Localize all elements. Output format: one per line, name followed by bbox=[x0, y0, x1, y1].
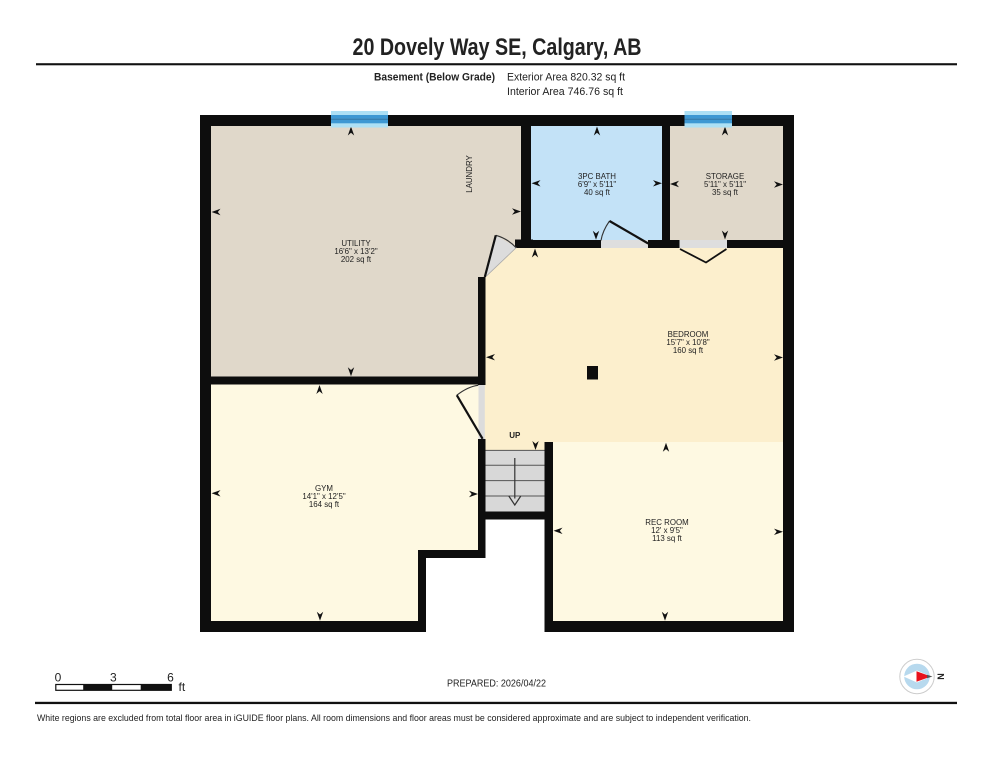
svg-text:113 sq ft: 113 sq ft bbox=[652, 534, 682, 543]
svg-text:N: N bbox=[936, 673, 946, 680]
svg-text:20 Dovely Way SE, Calgary, AB: 20 Dovely Way SE, Calgary, AB bbox=[353, 34, 642, 61]
svg-text:40 sq ft: 40 sq ft bbox=[584, 188, 611, 197]
svg-text:Basement (Below Grade): Basement (Below Grade) bbox=[374, 72, 495, 84]
svg-text:UP: UP bbox=[509, 431, 521, 440]
svg-text:White regions are excluded fro: White regions are excluded from total fl… bbox=[37, 713, 751, 723]
svg-text:160 sq ft: 160 sq ft bbox=[673, 346, 704, 355]
svg-text:Exterior Area 820.32 sq ft: Exterior Area 820.32 sq ft bbox=[507, 72, 625, 84]
svg-text:0: 0 bbox=[55, 671, 62, 685]
svg-text:Interior Area 746.76 sq ft: Interior Area 746.76 sq ft bbox=[507, 86, 623, 98]
svg-text:35 sq ft: 35 sq ft bbox=[712, 188, 739, 197]
svg-text:PREPARED: 2026/04/22: PREPARED: 2026/04/22 bbox=[447, 679, 546, 690]
svg-text:LAUNDRY: LAUNDRY bbox=[465, 154, 474, 192]
svg-text:6: 6 bbox=[167, 671, 174, 685]
svg-text:3: 3 bbox=[110, 671, 117, 685]
svg-text:ft: ft bbox=[179, 680, 186, 694]
svg-text:164 sq ft: 164 sq ft bbox=[309, 500, 340, 509]
svg-text:202 sq ft: 202 sq ft bbox=[341, 255, 372, 264]
